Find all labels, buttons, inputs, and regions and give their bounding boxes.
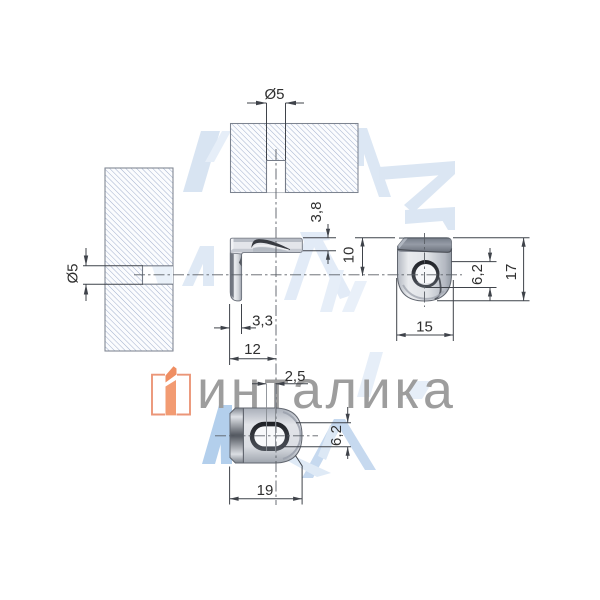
svg-text:3,3: 3,3 [252, 313, 273, 330]
svg-text:6,2: 6,2 [469, 264, 486, 285]
svg-text:Ø5: Ø5 [264, 86, 284, 103]
svg-text:Ø5: Ø5 [65, 263, 82, 283]
svg-text:19: 19 [257, 482, 274, 499]
svg-text:15: 15 [416, 319, 433, 336]
svg-text:12: 12 [244, 341, 261, 358]
svg-text:17: 17 [503, 264, 520, 281]
svg-text:3,8: 3,8 [308, 202, 325, 223]
svg-text:6,2: 6,2 [328, 425, 345, 446]
svg-text:10: 10 [341, 247, 358, 264]
svg-text:2,5: 2,5 [285, 368, 306, 385]
